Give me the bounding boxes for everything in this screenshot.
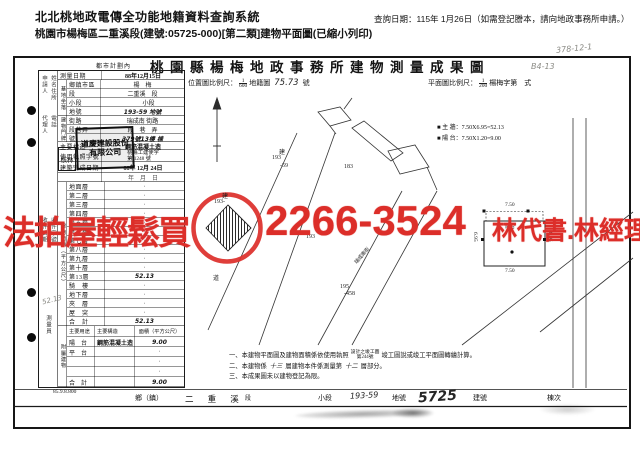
attached-area: 9.00 [135, 337, 184, 347]
legend-wall-swatch: ■ [437, 125, 441, 131]
attached-structure [95, 377, 135, 387]
floor-area-value: · [105, 182, 184, 191]
floor-area-value: · [105, 191, 184, 200]
floor-label: 第十層 [67, 263, 105, 272]
attached-use-header: 主要用途 [67, 326, 95, 337]
floor-area-value: · [105, 281, 184, 290]
floor-label: 夾 層 [67, 299, 105, 308]
note-2: 二、本建物係十三層建物本件係測量第十二層部分。 [229, 362, 539, 373]
margin-surveyor-label: 測量員 [44, 315, 52, 335]
watermark-text-right: 林代書.林經理 [492, 211, 640, 247]
road-label: 道 [213, 273, 219, 282]
location-scale-suffix: 地籍圖 [249, 79, 270, 87]
parcel-label-59: -59 [280, 163, 288, 169]
site-rows: 鄉鎮市區楊 梅 段二重溪 段 小段 小段 地號193-59 地號 [67, 80, 184, 116]
check-seal-stamp: 核林 [58, 147, 76, 171]
plan-dim-left: 6.95 [472, 232, 478, 242]
site-section: 基地坐落 鄉鎮市區楊 梅 段二重溪 段 小段 小段 地號193-59 地號 [58, 80, 184, 116]
floor-area-value: · [105, 290, 184, 299]
site-group-label: 基地坐落 [60, 86, 65, 111]
attached-structure-header: 主要構造 [95, 326, 135, 337]
field-value: 楊 梅 [101, 80, 184, 89]
field-value: 193-59 地號 [101, 107, 184, 116]
plan-scale-label: 平面圖比例尺： [428, 79, 477, 87]
attached-structure [95, 367, 135, 377]
attached-use: 陽 台 [67, 337, 95, 347]
field-value: 瑞成南 街路 [101, 116, 184, 125]
attached-rows: 陽 台鋼筋混凝土造9.00 平 台· · · 合 計9.00 [67, 337, 184, 387]
attached-use: 平 台 [67, 347, 95, 357]
floor-label: 騎 樓 [67, 281, 105, 290]
completion-blank-row: 年 月 日 [58, 173, 184, 182]
location-scale-label: 位置圖比例尺： [188, 79, 237, 87]
floor-area-value: · [105, 254, 184, 263]
attached-use [67, 357, 95, 367]
sheet-title: 桃園縣楊梅地政事務所建物測量成果圖 [150, 56, 490, 76]
note-1-stamp: 設計之竣工圖第244號 [351, 350, 380, 360]
floor-area-value: · [105, 299, 184, 308]
floor-label: 地下層 [67, 290, 105, 299]
attached-area: · [135, 357, 184, 367]
field-value: 小段 [101, 98, 184, 107]
legend-balcony-swatch: ■ [437, 136, 441, 142]
field-label: 地號 [67, 107, 101, 116]
map-sheet-unit: 號 [303, 79, 310, 87]
door-group-label: 建物門牌 [60, 117, 65, 142]
location-scale-fraction: 1600 [239, 79, 247, 89]
survey-date-row: 測量日期 88年12月15日 [58, 71, 184, 80]
notes-block: 一、本建物平面圖及建物面積係依使用執照設計之竣工圖第244號竣工圖說或竣工平面圖… [229, 350, 539, 383]
screenshot-page: 北北桃地政電傳全功能地籍資料查詢系統 查詢日期：115年 1月26日（如需登記謄… [0, 0, 640, 451]
sheet-rules [13, 390, 627, 407]
location-scale: 位置圖比例尺：1600地籍圖75.73號 [188, 78, 310, 89]
floor-label: 合 計 [67, 317, 105, 326]
plan-scale: 平面圖比例尺：1200楊梅字第 式 [428, 78, 531, 89]
owner-seal-stamp: 道慶建設股份有限公司 [75, 126, 134, 170]
floor-area-value: 52.13 [105, 317, 184, 326]
margin-agent-label: 代理人 [40, 115, 48, 135]
plan-dim-top: 7.50 [505, 202, 515, 208]
plan-scale-fraction: 1200 [479, 79, 487, 89]
legend-balcony: 陽 台：7.50X1.20=9.00 [442, 136, 501, 142]
floor-area-value: · [105, 263, 184, 272]
page-code-note: B4-13 [531, 62, 555, 71]
watermark-phone: 2266-3524 [265, 197, 466, 245]
note-3: 三、本成果圖未以建物登記為限。 [229, 372, 539, 383]
attached-structure [95, 357, 135, 367]
area-rows: 地面層· 第二層· 第三層· 第四層· 第五層· 第六層· 第七層· 第八層· [67, 182, 184, 326]
plan-dim-bottom: 7.50 [505, 268, 515, 274]
floor-area-value: 52.13 [105, 272, 184, 281]
margin-phone-label: 電話 [49, 115, 57, 128]
survey-date-value: 88年12月15日 [102, 71, 184, 80]
attached-structure: 鋼筋混凝土造 [95, 337, 135, 347]
subject-parcel-hatch [206, 205, 251, 251]
field-value: 二重溪 段 [101, 89, 184, 98]
margin-applicant-label: 申請人 [40, 75, 48, 95]
parcel-label-193: 193 [272, 155, 281, 161]
attached-area: · [135, 367, 184, 377]
plan-scale-suffix: 楊梅字第 式 [489, 79, 531, 87]
attached-group-label: 附屬建物 [60, 344, 65, 369]
field-label: 鄉鎮市區 [67, 80, 101, 89]
attached-section: 附屬建物 主要用途 主要構造 面積（平方公尺） 陽 台鋼筋混凝土造9.00 平 … [58, 326, 184, 387]
field-label: 段 [67, 89, 101, 98]
margin-name-label: 姓名住所 [49, 75, 57, 101]
map-sheet-number: 75.73 [274, 78, 298, 88]
area-section: 建物面積（平方公尺） 地面層· 第二層· 第三層· 第四層· 第五層· 第六層· [58, 182, 184, 326]
north-arrow-icon [213, 98, 221, 162]
attached-area: · [135, 347, 184, 357]
parcel-label-458: -458 [344, 291, 355, 297]
parcel-label-183: 183 [344, 164, 353, 170]
zone-note: 都市計劃內 [96, 61, 131, 70]
subject-label-193: 193- [214, 199, 225, 205]
attached-use [67, 367, 95, 377]
field-label: 小段 [67, 98, 101, 107]
plan-legend: ■ 主 牆：7.50X6.95=52.13 ■ 陽 台：7.50X1.20=9.… [437, 123, 504, 145]
floor-label: 第13層 [67, 272, 105, 281]
floor-area-value: · [105, 308, 184, 317]
attached-area: 9.00 [135, 377, 184, 387]
field-label: 街路 [67, 116, 101, 125]
survey-date-label: 測量日期 [58, 71, 102, 80]
floor-label: 屋 突 [67, 308, 105, 317]
watermark-text-left: 法拍屋輕鬆買 [3, 206, 189, 254]
attached-use: 合 計 [67, 377, 95, 387]
attached-header-row: 主要用途 主要構造 面積（平方公尺） [67, 326, 184, 337]
floor-label: 第二層 [67, 191, 105, 200]
attached-area-header: 面積（平方公尺） [135, 326, 184, 337]
completion-blank: 年 月 日 [102, 173, 184, 182]
floor-label: 第九層 [67, 254, 105, 263]
legend-wall: 主 牆：7.50X6.95=52.13 [442, 125, 504, 131]
attached-structure [95, 347, 135, 357]
parcel-label-195: 195 [340, 284, 349, 290]
note-1: 一、本建物平面圖及建物面積係依使用執照設計之竣工圖第244號竣工圖說或竣工平面圖… [229, 350, 539, 362]
floor-label: 地面層 [67, 182, 105, 191]
